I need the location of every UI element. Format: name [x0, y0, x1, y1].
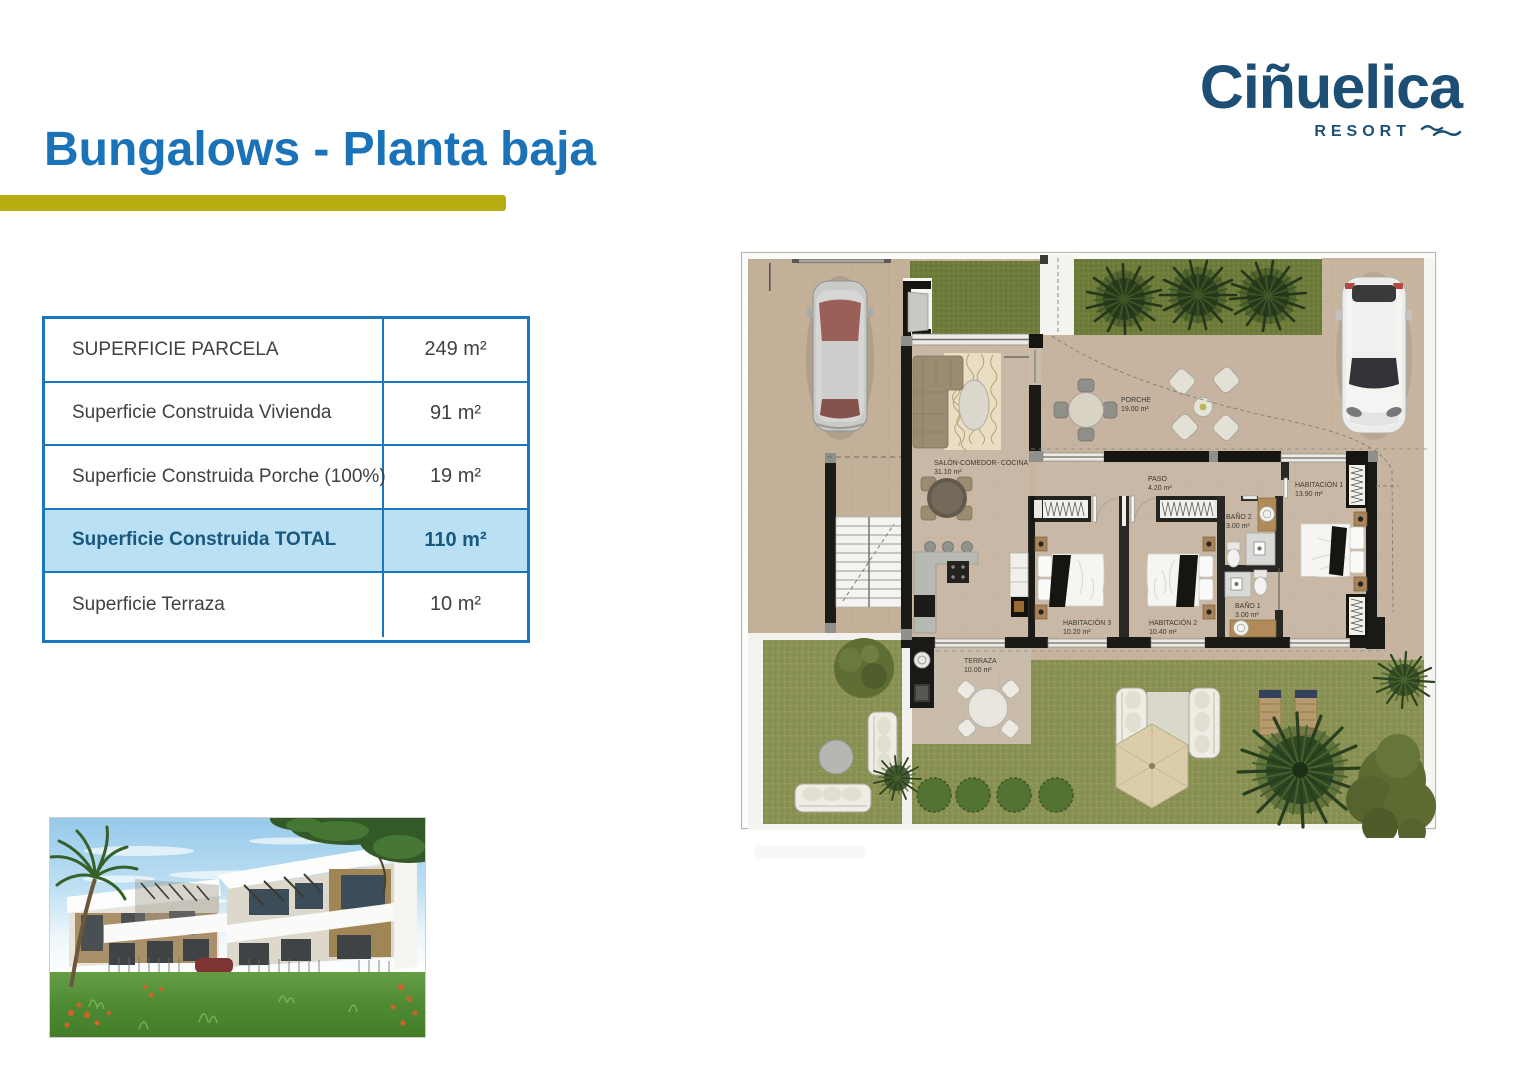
svg-text:4.20 m²: 4.20 m²: [1148, 485, 1172, 492]
svg-text:PASO: PASO: [1148, 476, 1167, 483]
svg-text:13.90 m²: 13.90 m²: [1295, 491, 1323, 498]
svg-text:10.20 m²: 10.20 m²: [1063, 629, 1091, 636]
svg-text:HABITACIÓN 3: HABITACIÓN 3: [1063, 618, 1111, 627]
svg-text:BAÑO 2: BAÑO 2: [1226, 512, 1252, 521]
svg-text:19.00 m²: 19.00 m²: [1121, 406, 1149, 413]
svg-text:HABITACIÓN 1: HABITACIÓN 1: [1295, 480, 1343, 489]
svg-text:SALÓN-COMEDOR- COCINA: SALÓN-COMEDOR- COCINA: [934, 458, 1028, 467]
svg-text:3.00 m²: 3.00 m²: [1226, 523, 1250, 530]
svg-text:TERRAZA: TERRAZA: [964, 658, 997, 665]
svg-text:10.00 m²: 10.00 m²: [964, 667, 992, 674]
svg-text:BAÑO 1: BAÑO 1: [1235, 601, 1261, 610]
svg-text:PORCHE: PORCHE: [1121, 397, 1151, 404]
svg-text:10.40 m²: 10.40 m²: [1149, 629, 1177, 636]
svg-text:3.00 m²: 3.00 m²: [1235, 612, 1259, 619]
svg-text:HABITACIÓN 2: HABITACIÓN 2: [1149, 618, 1197, 627]
svg-text:31.10 m²: 31.10 m²: [934, 469, 962, 476]
